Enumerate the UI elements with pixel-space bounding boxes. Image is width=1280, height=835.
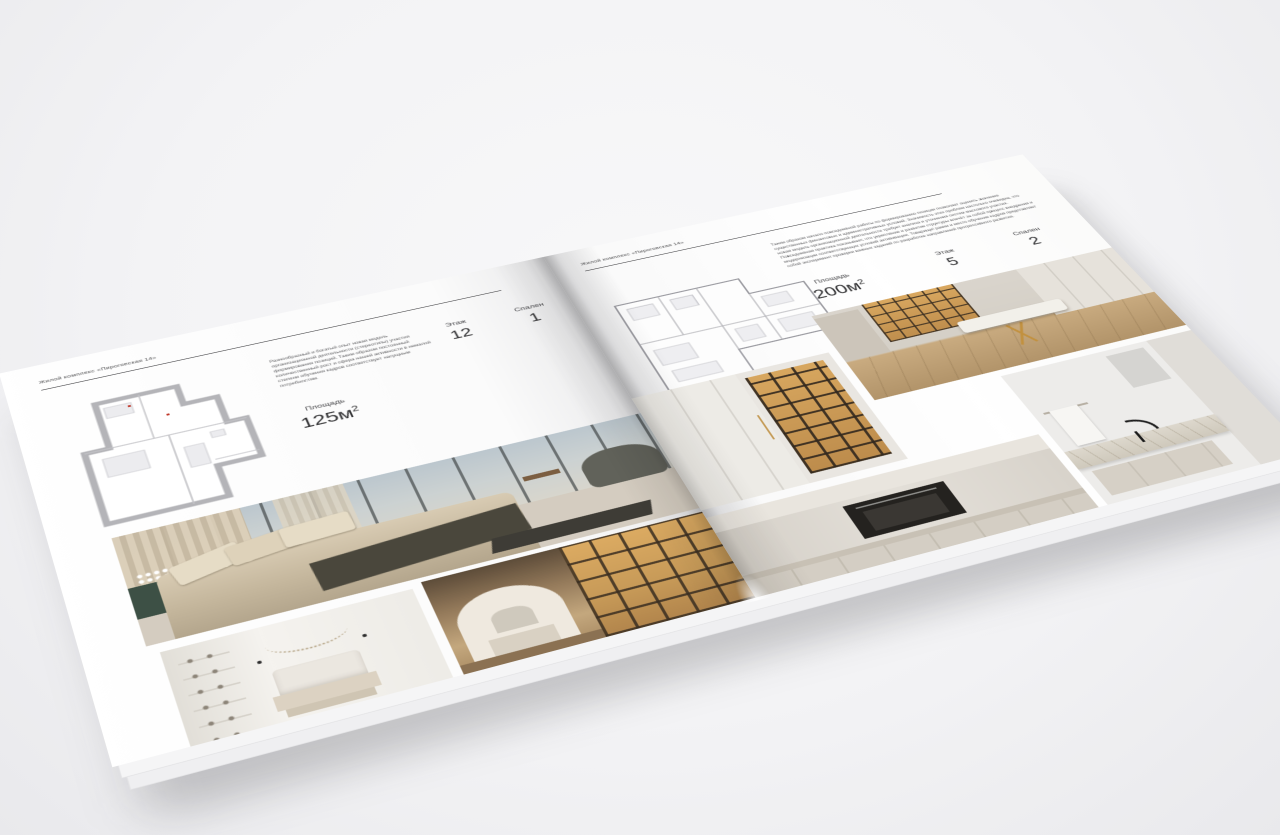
gold-handle	[757, 415, 775, 439]
curtain	[111, 508, 262, 600]
window-view	[111, 413, 674, 600]
bed	[155, 491, 542, 639]
area-stat: Площадь 200м2	[800, 269, 876, 303]
photo-bedroom-panorama	[111, 413, 699, 646]
bedrooms-stat: Спален 2	[1004, 224, 1061, 251]
page-title: Жилой комплекс «Пироговская 14»	[580, 240, 685, 266]
window-mullions	[111, 413, 674, 600]
bedrooms-stat: Спален 1	[505, 299, 562, 328]
faucet-stem	[1134, 431, 1146, 442]
bench	[492, 499, 653, 553]
mirror	[488, 602, 539, 633]
black-faucet	[1125, 415, 1160, 434]
brochure-spread: Жилой комплекс «Пироговская 14» Разнообр…	[0, 154, 1280, 767]
marble-counter	[1064, 414, 1229, 469]
green-dresser	[128, 572, 208, 619]
garland	[261, 615, 351, 658]
page-title: Жилой комплекс «Пироговская 14»	[38, 355, 157, 384]
sconce	[362, 633, 367, 637]
photo-backdrop: Жилой комплекс «Пироговская 14» Разнообр…	[0, 0, 1280, 835]
upper-cabinets	[706, 434, 1050, 533]
shelving	[175, 641, 258, 743]
bed-throw	[309, 502, 533, 590]
towel	[1049, 404, 1106, 445]
oven-glass	[863, 493, 950, 530]
pillow	[168, 541, 249, 586]
shelf-decor	[181, 647, 247, 741]
pillow	[277, 510, 356, 547]
sconce	[256, 660, 261, 664]
floor-plan-125	[38, 361, 301, 548]
headboard	[271, 649, 369, 697]
flowers	[136, 562, 191, 585]
lit-shelf-wall	[861, 283, 983, 341]
floor-stat: Этаж 5	[924, 245, 977, 271]
oven-handle	[855, 487, 936, 509]
oven	[843, 480, 967, 538]
side-table	[522, 468, 560, 481]
armchair	[574, 438, 670, 489]
floor-stat: Этаж 12	[434, 316, 486, 345]
area-stat: Площадь 125м2	[290, 394, 367, 432]
curtain	[272, 483, 365, 552]
pillow	[223, 525, 304, 566]
